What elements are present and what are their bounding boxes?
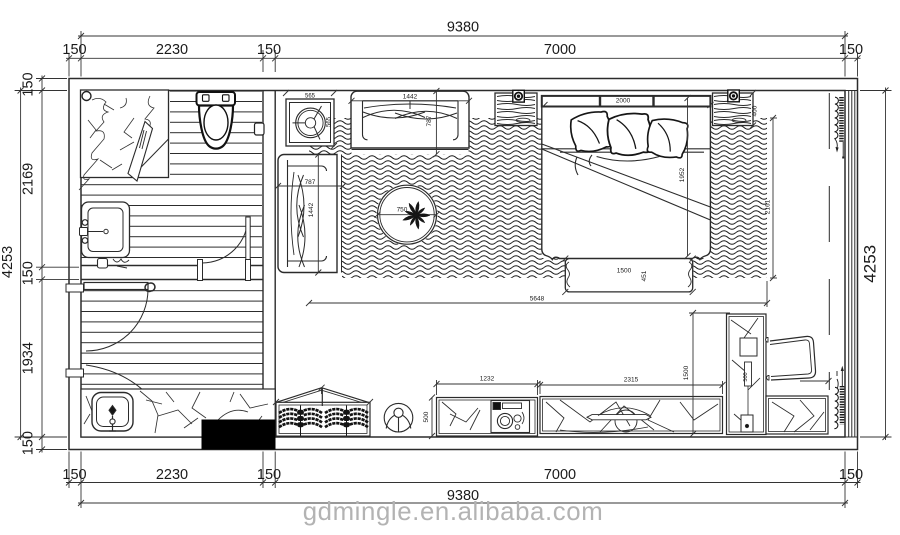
svg-text:gdmingle.en.alibaba.com: gdmingle.en.alibaba.com — [303, 498, 604, 526]
svg-text:150: 150 — [257, 467, 281, 483]
svg-text:1442: 1442 — [403, 94, 418, 101]
svg-text:2161: 2161 — [765, 199, 772, 214]
svg-text:150: 150 — [21, 72, 37, 96]
svg-text:2230: 2230 — [156, 42, 188, 58]
svg-text:150: 150 — [839, 42, 863, 58]
svg-text:1934: 1934 — [21, 342, 37, 374]
svg-text:1500: 1500 — [617, 268, 632, 275]
svg-text:565: 565 — [327, 116, 333, 127]
svg-text:7000: 7000 — [544, 42, 576, 58]
svg-text:150: 150 — [62, 467, 86, 483]
svg-text:400: 400 — [752, 105, 759, 116]
svg-text:2315: 2315 — [624, 377, 639, 384]
svg-text:565: 565 — [305, 94, 316, 100]
svg-text:150: 150 — [21, 261, 37, 285]
svg-text:500: 500 — [423, 411, 430, 422]
svg-text:1500: 1500 — [683, 365, 690, 380]
svg-text:150: 150 — [62, 42, 86, 58]
svg-text:2169: 2169 — [21, 163, 37, 195]
svg-text:150: 150 — [257, 42, 281, 58]
svg-text:4253: 4253 — [0, 246, 16, 278]
svg-text:1442: 1442 — [308, 202, 315, 217]
svg-text:7000: 7000 — [544, 467, 576, 483]
svg-text:1232: 1232 — [480, 376, 495, 383]
svg-text:4253: 4253 — [861, 245, 880, 283]
svg-text:2000: 2000 — [616, 98, 631, 105]
svg-text:150: 150 — [839, 467, 863, 483]
svg-text:150: 150 — [21, 431, 37, 455]
svg-text:2230: 2230 — [156, 467, 188, 483]
svg-text:787: 787 — [305, 179, 316, 186]
svg-text:1952: 1952 — [679, 167, 686, 182]
svg-text:5648: 5648 — [530, 296, 545, 303]
svg-text:787: 787 — [426, 115, 433, 126]
svg-text:451: 451 — [641, 270, 648, 281]
svg-text:500: 500 — [743, 372, 749, 381]
svg-text:9380: 9380 — [447, 20, 479, 36]
